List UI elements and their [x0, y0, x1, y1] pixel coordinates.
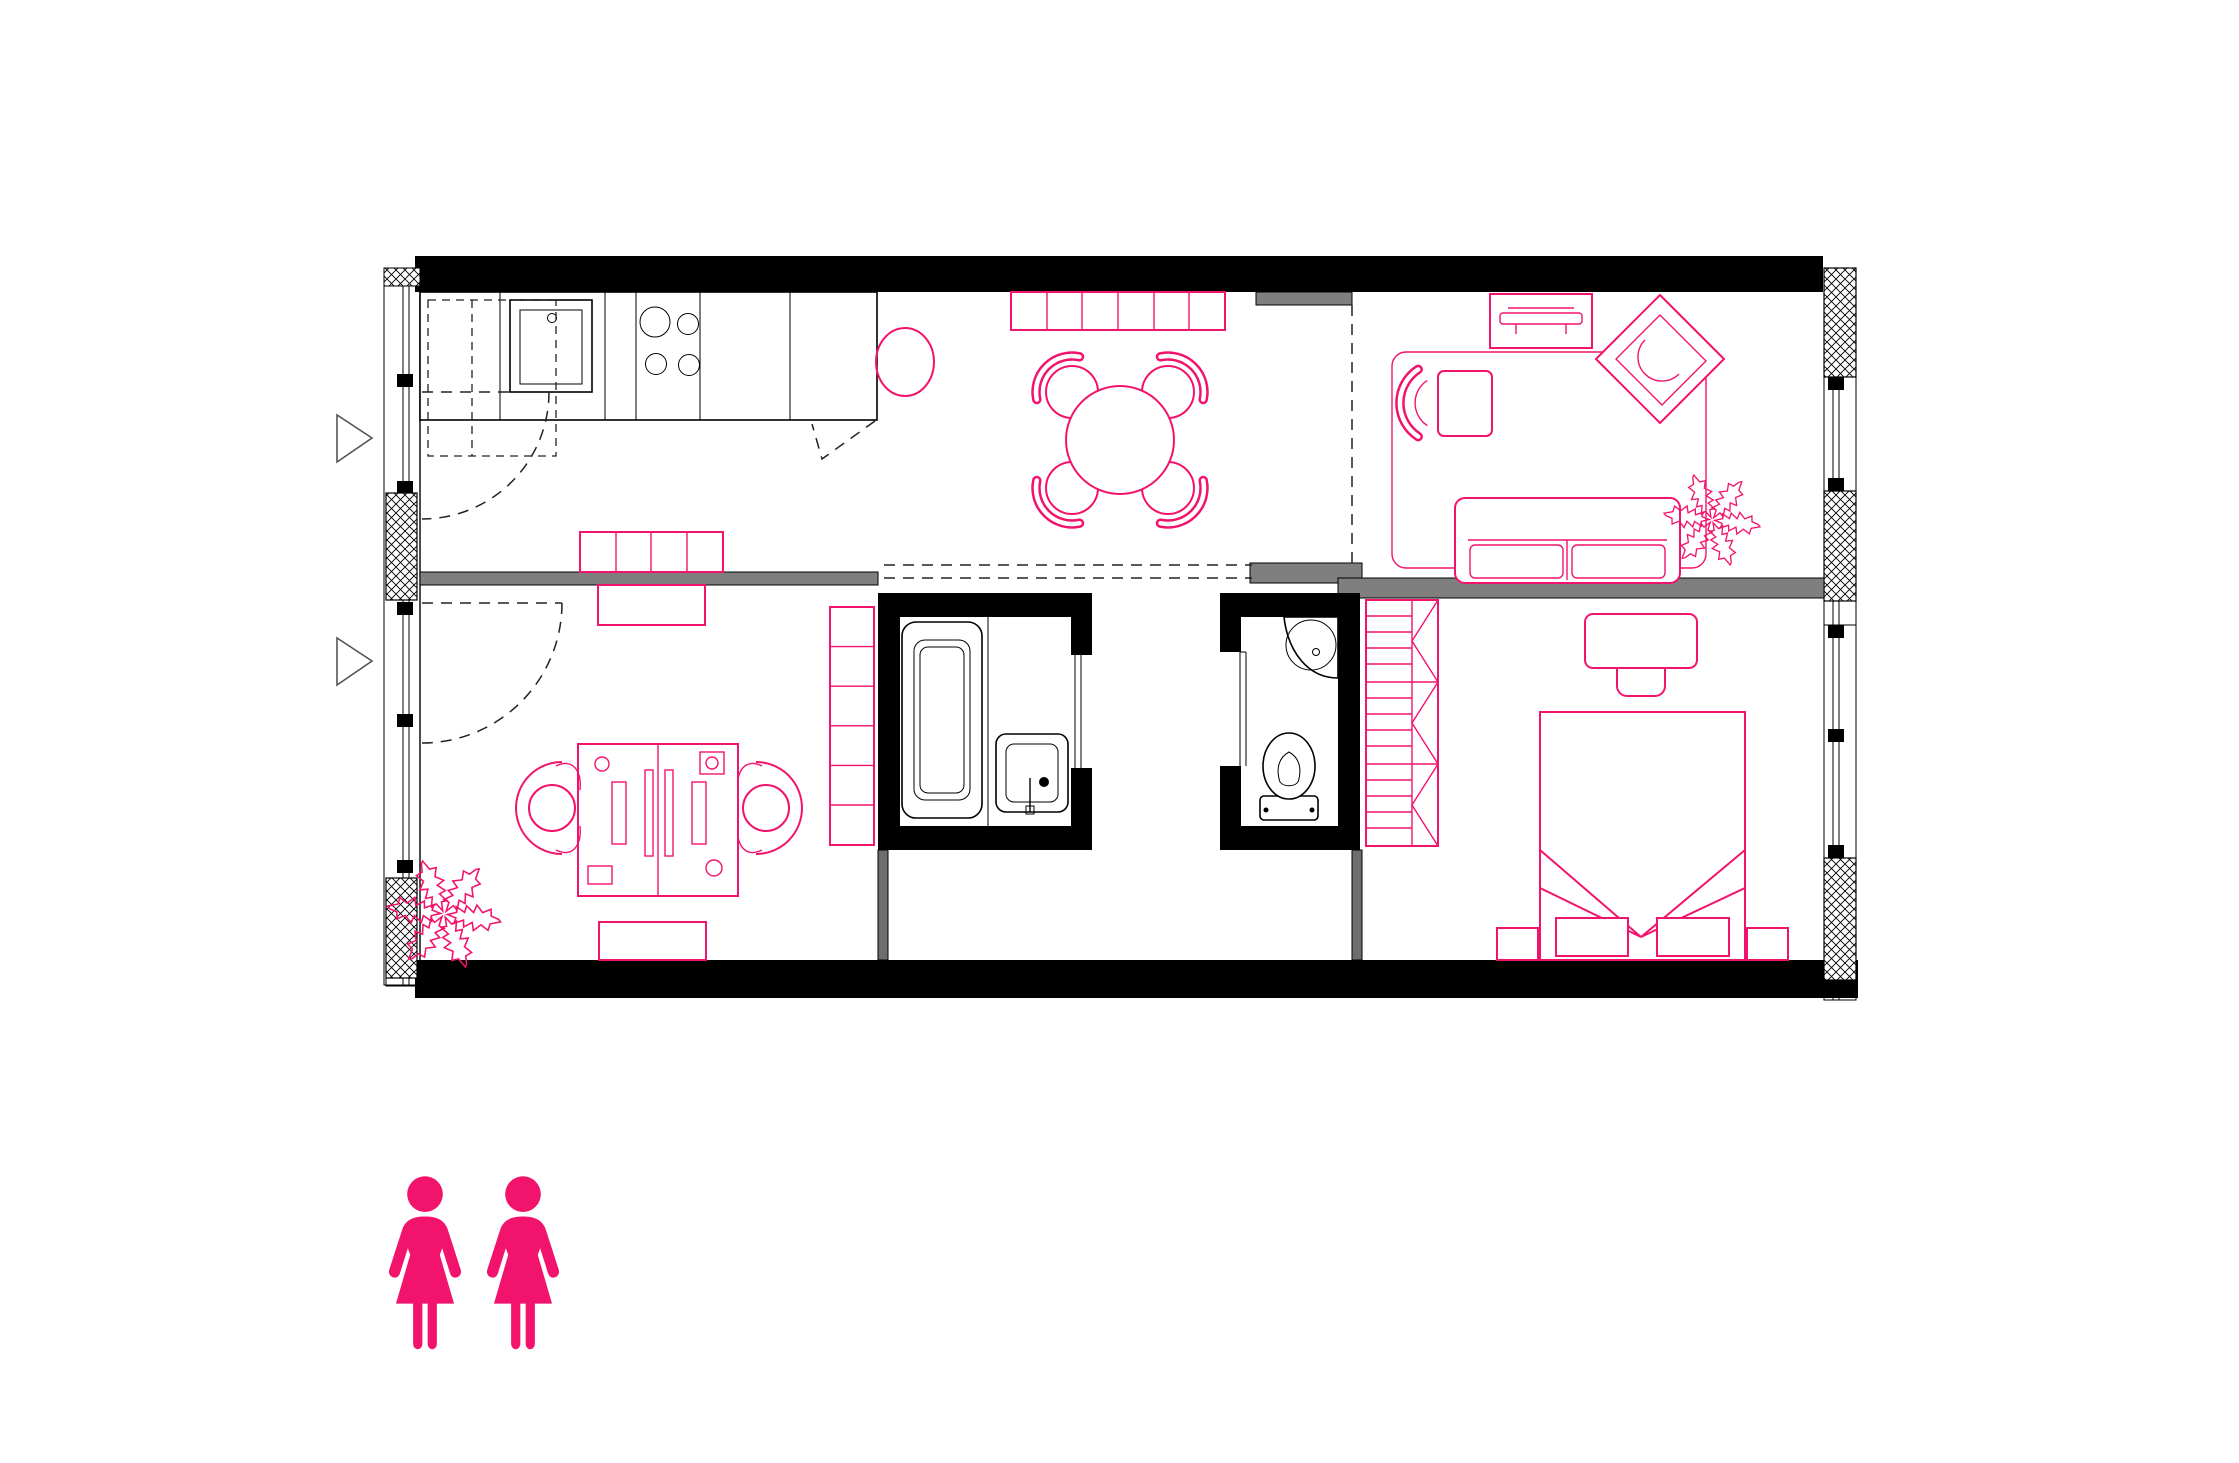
round-side-table — [876, 328, 934, 396]
partition-stub — [1256, 292, 1352, 305]
round-dining-table — [1066, 386, 1174, 494]
tv-console — [1490, 294, 1592, 348]
kitchen-sideboard-4-cells — [580, 532, 723, 572]
toilet — [1260, 733, 1318, 820]
corner-washbasin — [1284, 617, 1338, 678]
kitchen-sink — [510, 300, 592, 392]
double-desk — [578, 744, 738, 896]
wc-sliding-door — [1240, 652, 1246, 766]
right-window-wall — [1824, 268, 1856, 1000]
bottom-exterior-wall — [415, 960, 1858, 998]
storage-wall-right — [1352, 850, 1362, 960]
lounge-chair-diamond — [1596, 295, 1724, 423]
insulated-pier-hatched — [1824, 491, 1856, 601]
floor-plan-page — [0, 0, 2239, 1463]
office-door-swing — [422, 603, 562, 743]
woman-icon — [487, 1176, 559, 1349]
storage-wall-left — [878, 850, 888, 960]
top-exterior-wall — [415, 256, 1823, 292]
office-cabinet-top — [598, 585, 705, 625]
gray-partition-kitchen-office — [420, 572, 878, 585]
bathtub — [902, 622, 982, 818]
office-worker — [516, 762, 580, 854]
wardrobe-door-folds — [1412, 600, 1438, 846]
left-window-wall — [384, 268, 420, 986]
double-bed — [1540, 712, 1745, 960]
pillow — [1657, 918, 1729, 956]
shelf-column-6-cells — [830, 607, 874, 845]
armchair — [1400, 369, 1492, 436]
office-worker — [738, 762, 802, 854]
office-cabinet-bottom — [599, 922, 706, 960]
hanging-rail-lines — [1366, 616, 1412, 828]
nightstand — [1497, 928, 1538, 960]
insulated-pier-hatched — [1824, 268, 1856, 377]
woman-icon — [389, 1176, 461, 1349]
occupants-legend — [389, 1176, 559, 1349]
corner-cabinet-swing-dashed — [812, 421, 875, 459]
nightstand — [1747, 928, 1788, 960]
washbasin — [996, 734, 1068, 814]
entry-arrow — [337, 638, 372, 685]
bathroom-sliding-door — [1075, 655, 1081, 770]
pillow — [1556, 918, 1628, 956]
bedroom-desk-chair — [1585, 614, 1697, 696]
insulated-pier-hatched — [1824, 858, 1856, 980]
entry-arrow — [337, 415, 372, 462]
desk — [1585, 614, 1697, 668]
dining-sideboard-6-cells — [1011, 292, 1225, 330]
two-seat-sofa — [1455, 498, 1680, 583]
insulated-pier-hatched — [386, 878, 417, 978]
hatched-sill — [384, 268, 420, 286]
floor-plan-drawing — [0, 0, 2239, 1463]
insulated-pier-hatched — [386, 493, 417, 600]
wardrobe-3-cells — [1366, 600, 1438, 846]
dining-set — [1036, 356, 1204, 524]
